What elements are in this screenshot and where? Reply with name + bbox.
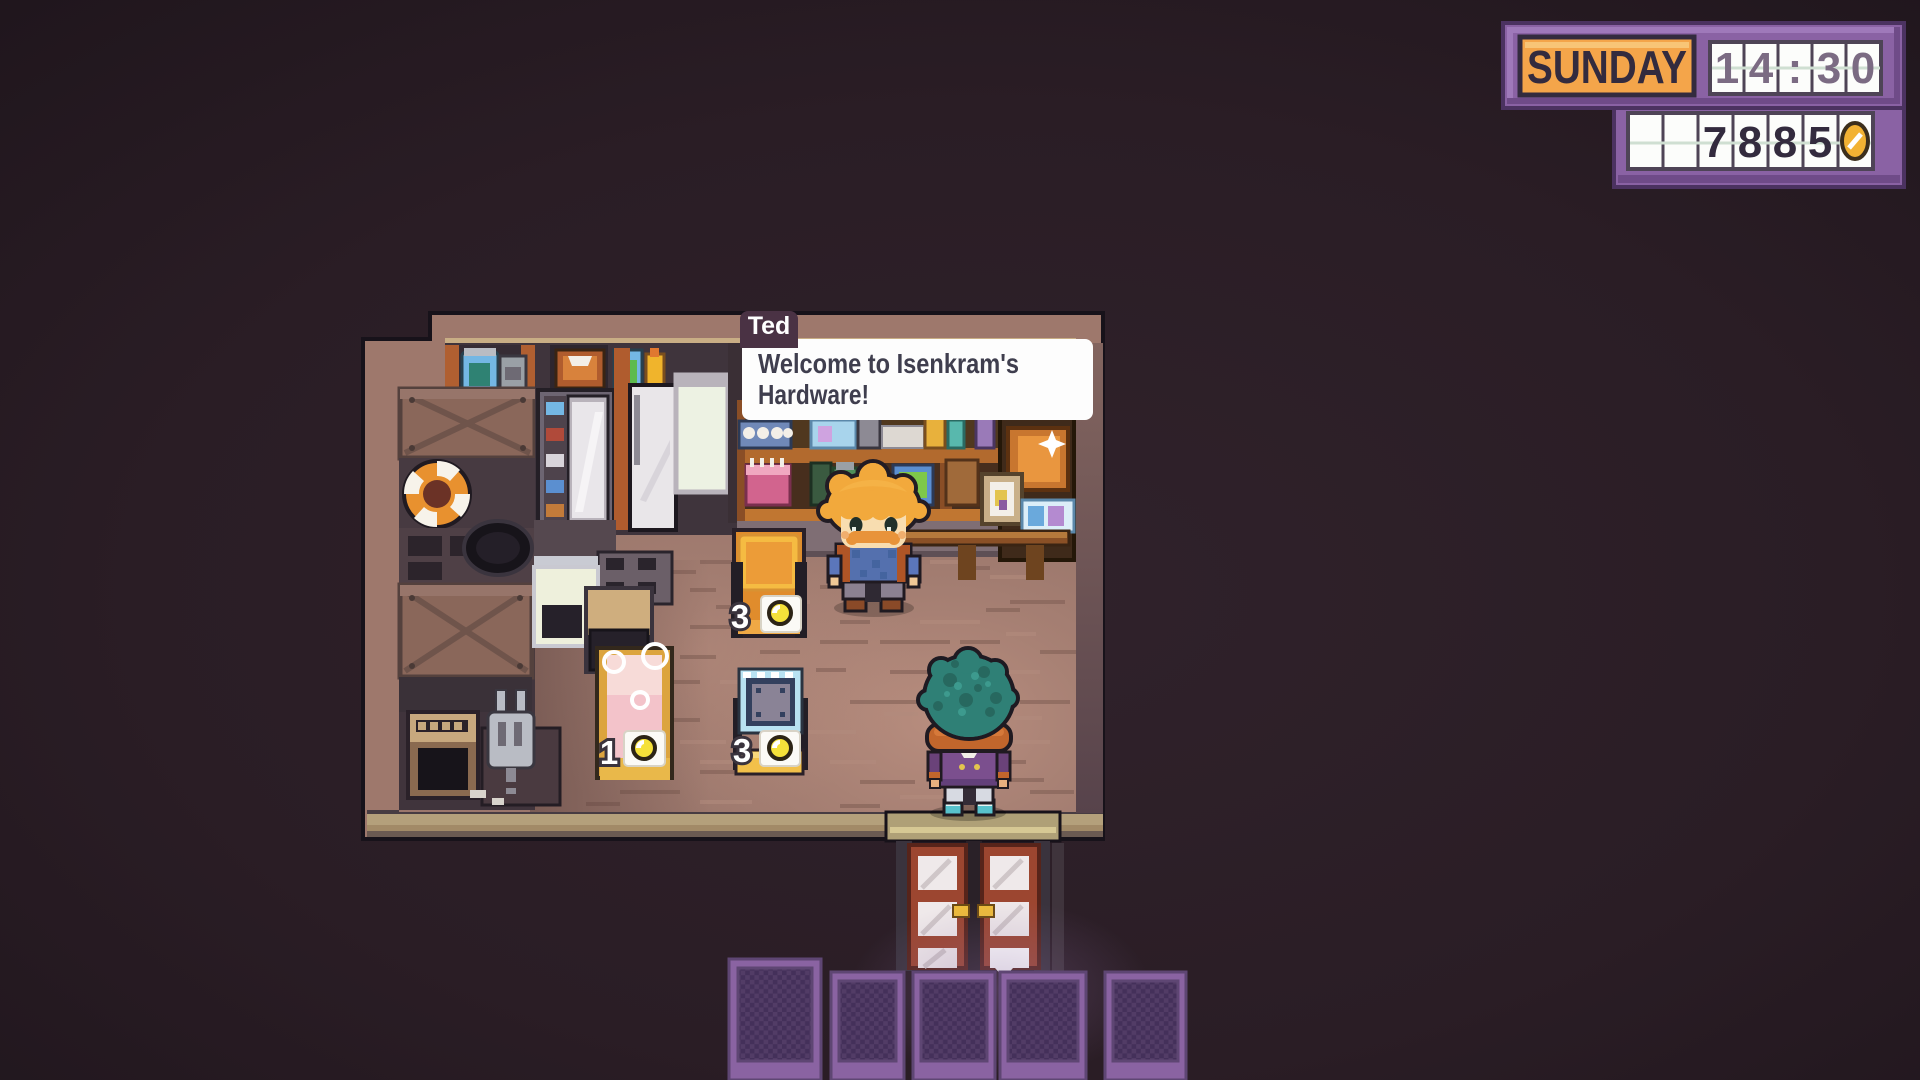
svg-text:8: 8 [1738, 118, 1762, 167]
svg-text:4: 4 [1749, 44, 1774, 93]
svg-text:0: 0 [1851, 44, 1875, 93]
svg-text:Hardware!: Hardware! [758, 379, 869, 410]
svg-text:1: 1 [600, 734, 618, 771]
svg-text::: : [1788, 44, 1803, 93]
svg-text:SUNDAY: SUNDAY [1527, 41, 1687, 93]
svg-text:1: 1 [1715, 44, 1739, 93]
svg-text:8: 8 [1773, 118, 1797, 167]
svg-text:3: 3 [733, 732, 751, 769]
svg-text:3: 3 [731, 598, 749, 635]
svg-text:7: 7 [1703, 118, 1727, 167]
svg-text:Ted: Ted [748, 312, 791, 340]
svg-text:3: 3 [1817, 44, 1841, 93]
svg-text:5: 5 [1808, 118, 1832, 167]
svg-text:Welcome to Isenkram's: Welcome to Isenkram's [758, 348, 1019, 379]
